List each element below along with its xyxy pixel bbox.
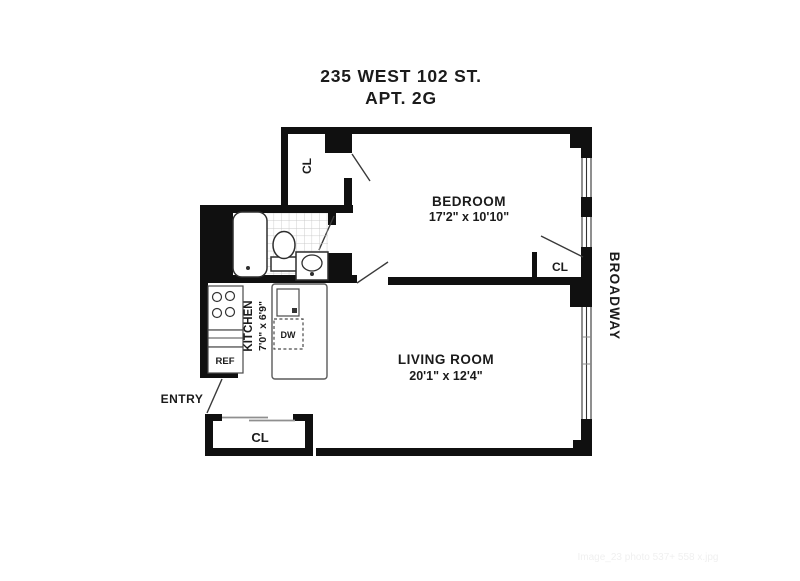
bedroom-label: BEDROOM (432, 194, 506, 209)
bedroom-dims: 17'2" x 10'10" (429, 210, 509, 224)
walls (200, 127, 592, 456)
bathroom-sink (296, 252, 328, 280)
bedroom-closet-door (541, 236, 583, 257)
entry-label: ENTRY (161, 392, 204, 406)
living-room-dims: 20'1" x 12'4" (409, 369, 482, 383)
kitchen-label: KITCHEN (243, 300, 255, 351)
kitchen-counter (208, 330, 243, 347)
top-closet-label: CL (300, 158, 314, 174)
bathroom (233, 212, 328, 280)
window-upper (582, 158, 591, 197)
page-subtitle: APT. 2G (365, 88, 437, 108)
bedroom-door (357, 262, 388, 283)
window-lower (582, 307, 591, 419)
watermark: Image_23 photo 537+ 558 x.jpg (578, 552, 719, 563)
kitchen-sink (277, 289, 299, 316)
entry-closet-label: CL (251, 430, 268, 445)
stove (208, 286, 243, 330)
toilet (271, 232, 297, 272)
sliding-doors (222, 418, 295, 421)
entry-door (207, 379, 222, 413)
window-middle (582, 217, 591, 247)
page-title: 235 WEST 102 ST. (320, 66, 482, 86)
floor-plan-drawing: 235 WEST 102 ST. APT. 2G BEDROOM 17'2" x… (0, 0, 800, 581)
living-room-label: LIVING ROOM (398, 352, 494, 367)
dishwasher-label: DW (281, 330, 296, 340)
broadway-label: BROADWAY (607, 252, 622, 341)
labels: 235 WEST 102 ST. APT. 2G BEDROOM 17'2" x… (161, 66, 719, 563)
top-closet-door (352, 154, 370, 181)
refrigerator-label: REF (216, 356, 235, 367)
floor-plan-page: 235 WEST 102 ST. APT. 2G BEDROOM 17'2" x… (0, 0, 800, 581)
bathtub (233, 212, 267, 277)
kitchen-dims: 7'0" x 6'9" (257, 301, 269, 351)
bedroom-closet-label: CL (552, 260, 568, 274)
